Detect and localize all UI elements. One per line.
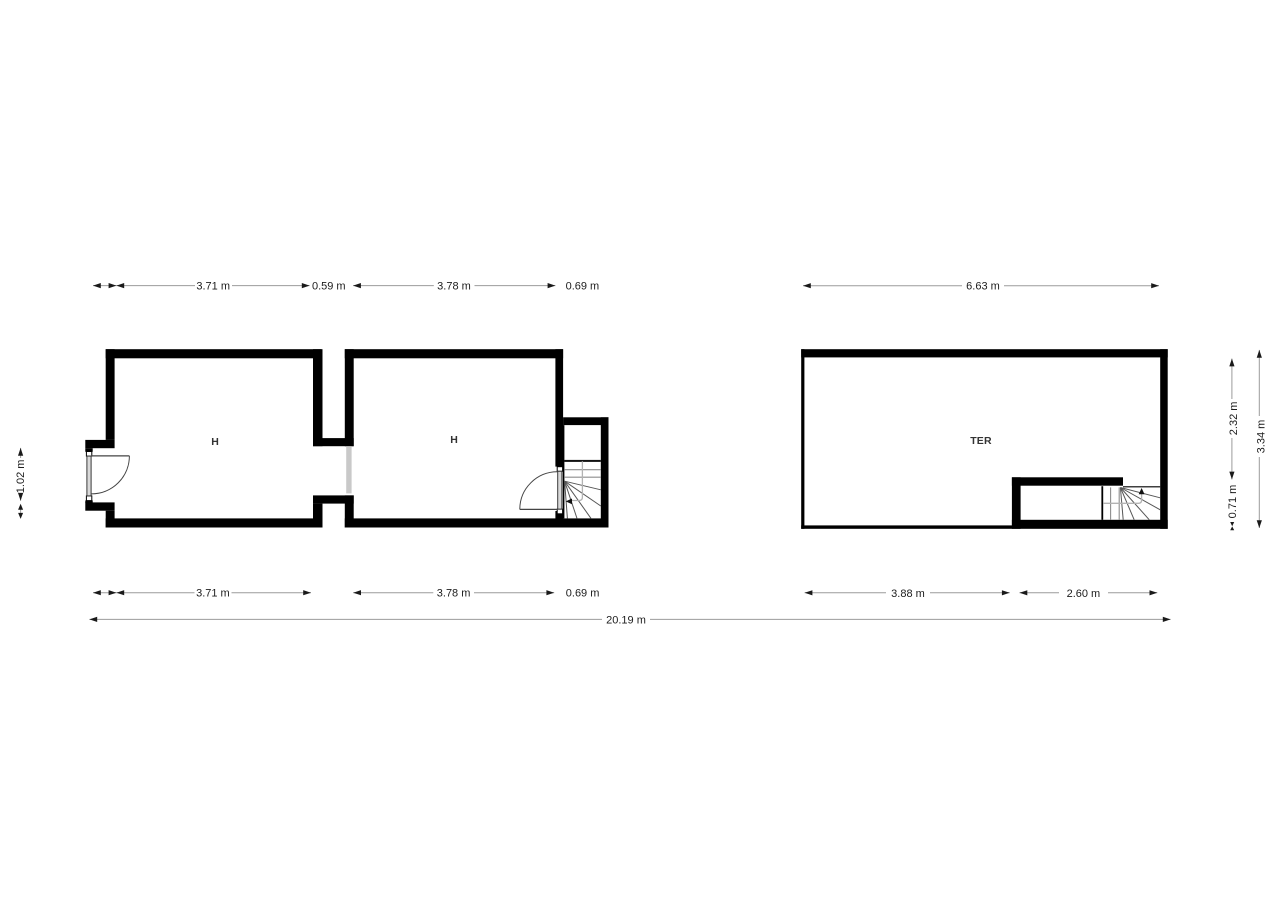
svg-text:TER: TER <box>970 435 992 447</box>
svg-text:0.69 m: 0.69 m <box>566 588 600 600</box>
svg-text:3.78 m: 3.78 m <box>437 588 471 600</box>
svg-text:3.71 m: 3.71 m <box>196 281 230 293</box>
svg-text:H: H <box>450 434 458 446</box>
svg-text:0.69 m: 0.69 m <box>566 281 600 293</box>
svg-text:2.32 m: 2.32 m <box>1228 402 1240 436</box>
svg-text:3.71 m: 3.71 m <box>196 588 230 600</box>
svg-text:3.78 m: 3.78 m <box>437 281 471 293</box>
svg-text:0.59 m: 0.59 m <box>312 281 346 293</box>
svg-text:0.71 m: 0.71 m <box>1227 485 1239 519</box>
svg-text:3.34 m: 3.34 m <box>1256 420 1268 454</box>
svg-text:1.02 m: 1.02 m <box>15 460 27 494</box>
svg-text:H: H <box>211 436 219 448</box>
svg-text:2.60 m: 2.60 m <box>1067 588 1101 600</box>
svg-text:3.88 m: 3.88 m <box>891 588 925 600</box>
svg-text:20.19 m: 20.19 m <box>606 614 646 626</box>
svg-text:6.63 m: 6.63 m <box>966 281 1000 293</box>
